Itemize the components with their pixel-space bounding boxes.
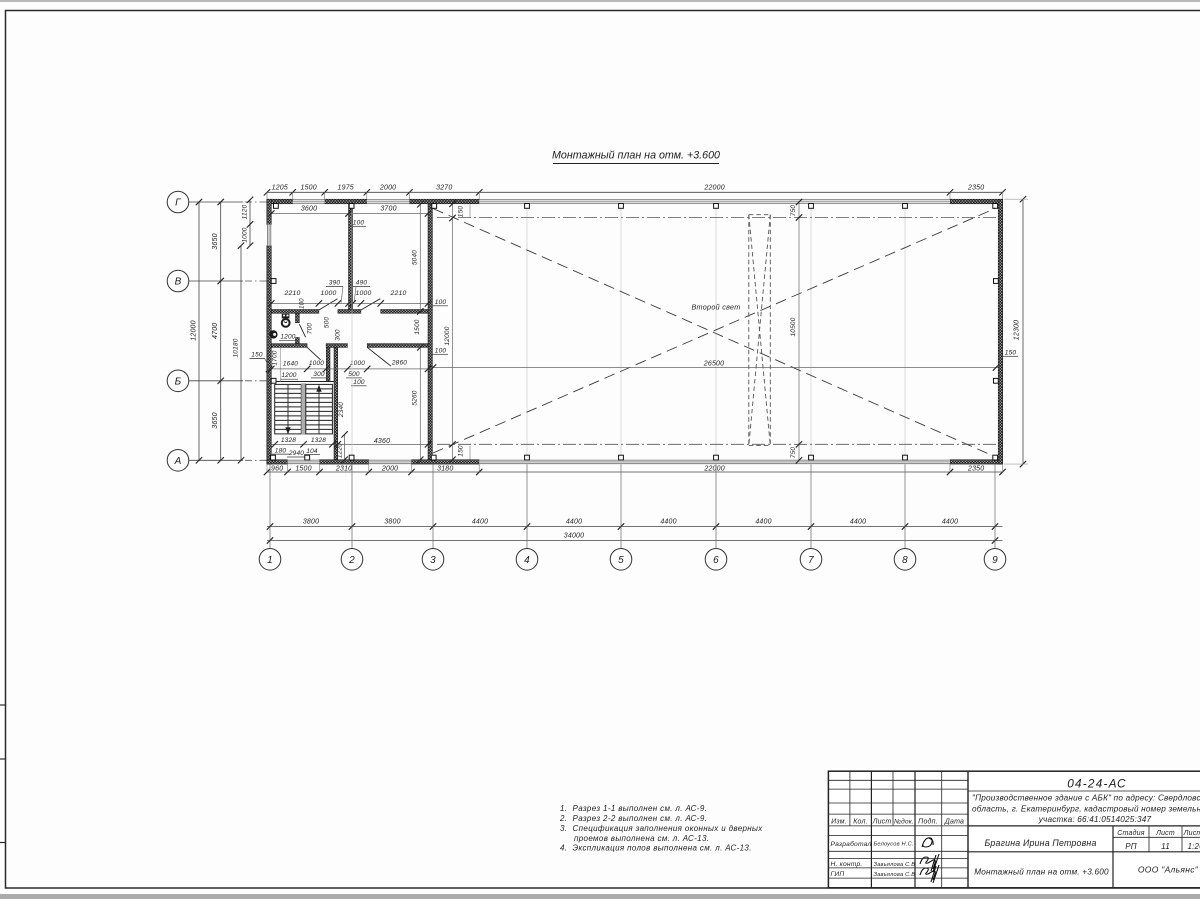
svg-text:750: 750 [790, 447, 797, 459]
svg-text:1200: 1200 [281, 372, 296, 379]
svg-text:6: 6 [713, 555, 719, 566]
svg-text:12000: 12000 [444, 326, 451, 345]
svg-text:2210: 2210 [284, 290, 301, 297]
svg-text:3: 3 [430, 555, 436, 566]
svg-text:8: 8 [902, 555, 908, 566]
svg-text:1120: 1120 [242, 204, 249, 219]
svg-text:Монтажный план на отм. +3.600: Монтажный план на отм. +3.600 [552, 150, 720, 162]
svg-text:2210: 2210 [390, 290, 407, 297]
svg-text:1: 1 [267, 555, 273, 566]
svg-text:Второй свет: Второй свет [691, 303, 740, 312]
svg-text:700: 700 [306, 323, 313, 335]
svg-text:1328: 1328 [281, 437, 296, 444]
svg-text:1975: 1975 [338, 184, 354, 191]
svg-text:2860: 2860 [391, 359, 407, 366]
svg-text:ООО "Альянс": ООО "Альянс" [1138, 865, 1199, 875]
svg-text:12000: 12000 [191, 320, 198, 340]
svg-text:100: 100 [353, 219, 365, 226]
svg-text:Монтажный план на отм. +3.600: Монтажный план на отм. +3.600 [974, 868, 1109, 877]
svg-text:11: 11 [1161, 842, 1170, 851]
svg-text:1000: 1000 [309, 360, 324, 367]
svg-text:4400: 4400 [660, 518, 676, 525]
svg-text:1328: 1328 [311, 437, 326, 444]
svg-text:10180: 10180 [233, 338, 240, 357]
svg-text:3800: 3800 [384, 518, 400, 525]
svg-text:2340: 2340 [338, 402, 345, 418]
svg-text:500: 500 [323, 317, 330, 329]
svg-text:Завьялова С.В: Завьялова С.В [874, 872, 916, 878]
svg-text:300: 300 [313, 371, 325, 378]
svg-text:область, г. Екатеринбург, када: область, г. Екатеринбург, кадастровый но… [972, 804, 1200, 813]
svg-text:150: 150 [458, 445, 465, 457]
svg-text:2350: 2350 [967, 184, 984, 191]
svg-text:Листов: Листов [1183, 830, 1200, 837]
svg-text:Дата: Дата [944, 818, 964, 825]
svg-text:150: 150 [1005, 349, 1017, 356]
svg-text:проемов выполнена см. л. АС-13: проемов выполнена см. л. АС-13. [574, 834, 709, 843]
svg-text:3650: 3650 [212, 233, 219, 249]
svg-text:"Производственное здание с АБК: "Производственное здание с АБК" по адрес… [972, 794, 1200, 803]
svg-text:390: 390 [329, 280, 341, 287]
svg-text:300: 300 [334, 329, 341, 341]
svg-text:750: 750 [790, 205, 797, 217]
svg-text:участка: 66:41:0514025:347: участка: 66:41:0514025:347 [1038, 815, 1152, 824]
svg-text:4400: 4400 [755, 518, 771, 525]
svg-text:1500: 1500 [414, 319, 421, 334]
svg-text:100: 100 [299, 298, 305, 309]
svg-text:1:200: 1:200 [1187, 842, 1200, 851]
svg-text:1220: 1220 [337, 443, 344, 458]
svg-text:2940: 2940 [288, 450, 304, 457]
svg-text:3700: 3700 [380, 205, 396, 212]
svg-text:Лист: Лист [1155, 830, 1175, 837]
svg-text:Изм.: Изм. [831, 818, 847, 825]
svg-text:4400: 4400 [566, 518, 582, 525]
svg-text:2000: 2000 [381, 465, 398, 472]
svg-text:ГИП: ГИП [831, 871, 845, 878]
svg-text:Брагина Ирина Петровна: Брагина Ирина Петровна [984, 838, 1096, 848]
svg-text:4400: 4400 [472, 518, 488, 525]
svg-text:Завьялова С.В: Завьялова С.В [874, 862, 916, 868]
svg-text:Лист: Лист [872, 818, 892, 825]
svg-text:2310: 2310 [335, 465, 352, 472]
svg-text:2000: 2000 [379, 184, 396, 191]
svg-text:34000: 34000 [564, 532, 584, 539]
svg-text:22000: 22000 [703, 184, 724, 191]
svg-text:Стадия: Стадия [1117, 829, 1144, 837]
svg-text:04-24-АС: 04-24-АС [1067, 777, 1126, 791]
svg-text:104: 104 [306, 448, 318, 455]
svg-text:490: 490 [356, 280, 368, 287]
svg-text:3650: 3650 [212, 412, 219, 428]
svg-text:3270: 3270 [436, 184, 452, 191]
svg-text:1200: 1200 [280, 333, 295, 340]
svg-text:1700: 1700 [272, 350, 279, 365]
svg-text:9: 9 [992, 555, 998, 566]
svg-text:5260: 5260 [411, 390, 418, 405]
svg-text:Белоусов Н.С.: Белоусов Н.С. [874, 842, 914, 848]
svg-text:4400: 4400 [850, 518, 866, 525]
svg-text:1500: 1500 [301, 184, 317, 191]
svg-text:1. Разрез 1-1 выполнен см. л.: 1. Разрез 1-1 выполнен см. л. АС-9. [560, 804, 707, 813]
svg-text:Н. контр.: Н. контр. [831, 861, 863, 868]
svg-text:3600: 3600 [301, 205, 317, 212]
svg-text:А: А [174, 456, 182, 467]
svg-text:1500: 1500 [295, 465, 311, 472]
svg-text:2: 2 [348, 555, 355, 566]
svg-text:3. Спецификация заполнения ок: 3. Спецификация заполнения оконных и две… [560, 824, 763, 833]
svg-text:Подп.: Подп. [918, 817, 938, 825]
svg-text:3180: 3180 [437, 465, 453, 472]
svg-text:5040: 5040 [411, 250, 418, 265]
svg-text:100: 100 [435, 347, 447, 354]
svg-text:100: 100 [353, 379, 365, 386]
svg-text:7: 7 [808, 555, 814, 566]
svg-text:Разработал: Разработал [831, 840, 872, 848]
svg-text:22000: 22000 [703, 465, 724, 472]
svg-text:1640: 1640 [283, 361, 298, 368]
svg-text:1205: 1205 [272, 184, 288, 191]
svg-text:РП: РП [1125, 842, 1137, 851]
svg-text:150: 150 [458, 206, 465, 218]
svg-text:4400: 4400 [942, 518, 958, 525]
svg-text:4700: 4700 [212, 323, 219, 339]
svg-text:Б: Б [175, 377, 182, 388]
svg-text:180: 180 [275, 447, 287, 454]
svg-text:26500: 26500 [703, 360, 724, 367]
svg-text:10500: 10500 [790, 317, 797, 336]
svg-text:4. Экспликация полов выполнен: 4. Экспликация полов выполнена см. л. АС… [560, 844, 752, 853]
svg-text:Кол.: Кол. [853, 818, 868, 825]
svg-text:4360: 4360 [374, 438, 390, 445]
svg-text:1000: 1000 [356, 290, 372, 297]
svg-text:2350: 2350 [967, 465, 984, 472]
svg-text:3800: 3800 [303, 518, 319, 525]
svg-text:100: 100 [435, 299, 447, 306]
svg-text:№док.: №док. [894, 817, 914, 825]
svg-text:500: 500 [348, 371, 360, 378]
svg-text:960: 960 [271, 465, 283, 472]
svg-text:5: 5 [618, 555, 624, 566]
svg-text:В: В [175, 277, 182, 288]
svg-text:150: 150 [251, 352, 263, 359]
svg-text:1000: 1000 [321, 290, 337, 297]
svg-text:1000: 1000 [242, 227, 249, 242]
svg-text:4: 4 [524, 555, 530, 566]
svg-text:12300: 12300 [1014, 320, 1021, 340]
svg-text:2. Разрез 2-2 выполнен см. л.: 2. Разрез 2-2 выполнен см. л. АС-9. [559, 814, 707, 823]
